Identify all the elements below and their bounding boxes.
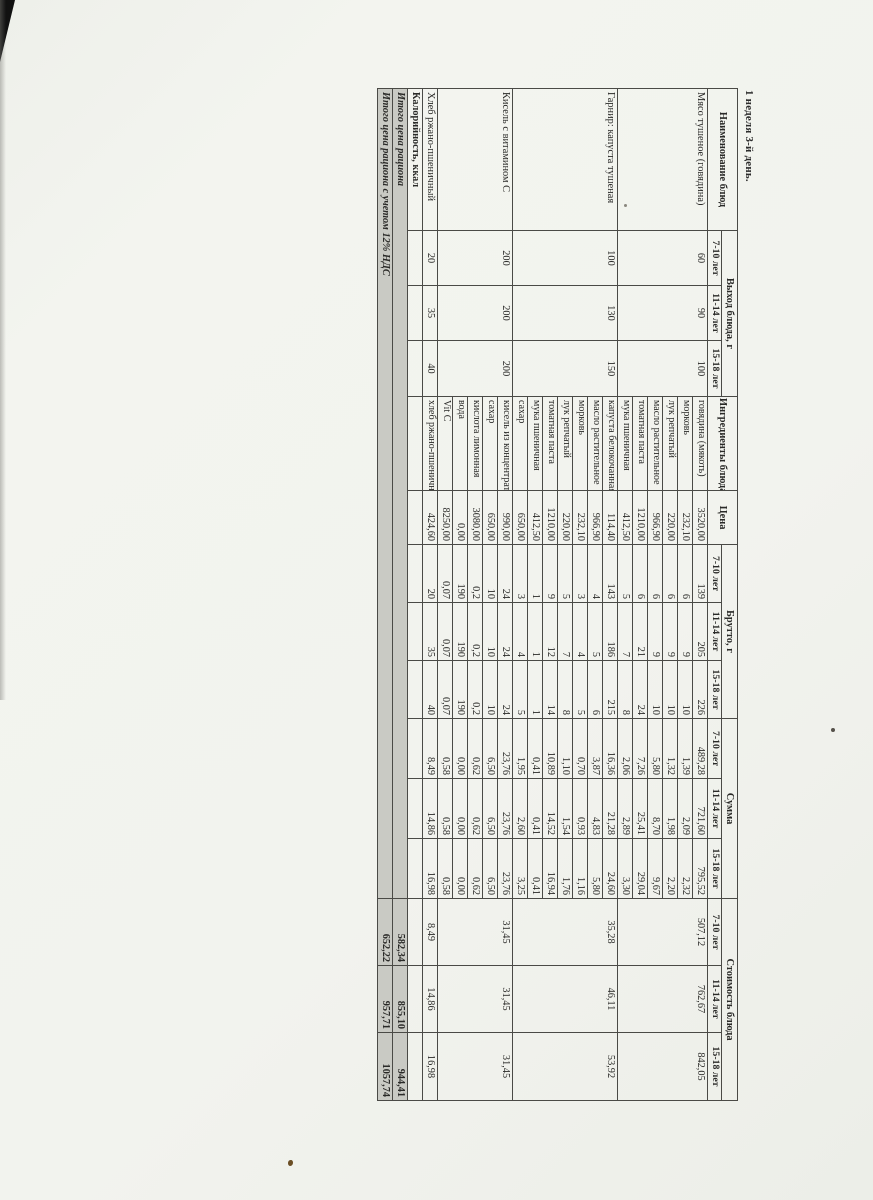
- ingredient-cell: вода: [453, 397, 468, 491]
- col-header-output: Выход блюда, г: [721, 231, 737, 397]
- ingredient-cell: сахар: [483, 397, 498, 491]
- sum-cell: 7,26: [633, 719, 648, 779]
- brutto-cell: 9: [648, 603, 663, 661]
- dish-cost-cell: 842,05: [618, 1033, 708, 1101]
- ingredient-cell: Vit C: [438, 397, 453, 491]
- price-cell: 0,00: [453, 491, 468, 545]
- col-header-age-1: 11-14 лет: [708, 286, 722, 341]
- output-cell: 90: [618, 286, 708, 341]
- brutto-cell: 10: [648, 661, 663, 719]
- price-cell: 3080,00: [468, 491, 483, 545]
- sum-cell: 0,00: [453, 719, 468, 779]
- sum-cell: 3,30: [618, 839, 633, 899]
- brutto-cell: 0,07: [438, 661, 453, 719]
- price-cell: 232,10: [573, 491, 588, 545]
- sum-cell: 2,06: [618, 719, 633, 779]
- price-cell: 412,50: [618, 491, 633, 545]
- brutto-cell: 0,2: [468, 603, 483, 661]
- scan-speck: [831, 728, 835, 732]
- ingredient-cell: сахар: [513, 397, 528, 491]
- sum-cell: 23,76: [498, 839, 513, 899]
- sum-cell: 1,10: [558, 719, 573, 779]
- brutto-cell: 1: [528, 545, 543, 603]
- empty-cell: [408, 603, 423, 661]
- empty-cell: [408, 231, 423, 286]
- price-cell: 966,90: [588, 491, 603, 545]
- col-header-age-0: 7-10 лет: [708, 545, 722, 603]
- ingredient-cell: масло растительное: [588, 397, 603, 491]
- dish-cost-cell: 31,45: [438, 1033, 513, 1101]
- brutto-cell: 1: [528, 661, 543, 719]
- footer-value: [408, 966, 423, 1033]
- sum-cell: 5,80: [648, 719, 663, 779]
- brutto-cell: 186: [603, 603, 618, 661]
- sum-cell: 2,09: [678, 779, 693, 839]
- footer-value: 652,22: [378, 899, 393, 966]
- empty-cell: [408, 341, 423, 397]
- footer-label: Итого цена рациона: [393, 89, 408, 899]
- output-cell: 40: [423, 341, 438, 397]
- ingredient-cell: мука пшеничная: [528, 397, 543, 491]
- price-cell: 1210,00: [543, 491, 558, 545]
- price-cell: 8250,00: [438, 491, 453, 545]
- sum-cell: 14,52: [543, 779, 558, 839]
- price-cell: 424,60: [423, 491, 438, 545]
- brutto-cell: 143: [603, 545, 618, 603]
- output-cell: 130: [513, 286, 618, 341]
- sum-cell: 5,80: [588, 839, 603, 899]
- ingredient-cell: кислота лимонная: [468, 397, 483, 491]
- brutto-cell: 6: [663, 545, 678, 603]
- brutto-cell: 9: [678, 603, 693, 661]
- sum-cell: 0,58: [438, 719, 453, 779]
- sum-cell: 6,50: [483, 719, 498, 779]
- brutto-cell: 3: [573, 545, 588, 603]
- brutto-cell: 7: [558, 603, 573, 661]
- price-cell: 650,00: [483, 491, 498, 545]
- sum-cell: 0,58: [438, 779, 453, 839]
- brutto-cell: 24: [498, 545, 513, 603]
- sum-cell: 489,28: [693, 719, 708, 779]
- output-cell: 200: [438, 341, 513, 397]
- brutto-cell: 3: [513, 545, 528, 603]
- brutto-cell: 5: [573, 661, 588, 719]
- brutto-cell: 6: [678, 545, 693, 603]
- dish-cost-cell: 31,45: [438, 899, 513, 966]
- output-cell: 20: [423, 231, 438, 286]
- brutto-cell: 7: [618, 603, 633, 661]
- sum-cell: 3,87: [588, 719, 603, 779]
- col-header-age-0: 7-10 лет: [708, 719, 722, 779]
- sum-cell: 0,62: [468, 719, 483, 779]
- empty-cell: [408, 779, 423, 839]
- brutto-cell: 24: [633, 661, 648, 719]
- footer-row: Итого цена рациона с учетом 12% НДС652,2…: [378, 89, 393, 1101]
- output-cell: 100: [618, 341, 708, 397]
- sum-cell: 1,39: [678, 719, 693, 779]
- footer-value: 944,41: [393, 1033, 408, 1101]
- table-row: Кисель с витамином С200200200кисель из к…: [498, 89, 513, 1101]
- sum-cell: 1,16: [573, 839, 588, 899]
- brutto-cell: 10: [678, 661, 693, 719]
- dish-cost-cell: 31,45: [438, 966, 513, 1033]
- col-header-age-1: 11-14 лет: [708, 779, 722, 839]
- sum-cell: 8,70: [648, 779, 663, 839]
- sum-cell: 0,00: [453, 779, 468, 839]
- brutto-cell: 10: [483, 603, 498, 661]
- sum-cell: 16,94: [543, 839, 558, 899]
- output-cell: 100: [513, 231, 618, 286]
- sum-cell: 0,41: [528, 719, 543, 779]
- brutto-cell: 24: [498, 603, 513, 661]
- ingredient-cell: говядина (мякоть): [693, 397, 708, 491]
- empty-cell: [408, 491, 423, 545]
- dish-cost-cell: 16,98: [423, 1033, 438, 1101]
- brutto-cell: 205: [693, 603, 708, 661]
- dish-cost-cell: 14,86: [423, 966, 438, 1033]
- footer-value: 582,34: [393, 899, 408, 966]
- footer-label: Итого цена рациона с учетом 12% НДС: [378, 89, 393, 899]
- brutto-cell: 35: [423, 603, 438, 661]
- sum-cell: 2,20: [663, 839, 678, 899]
- price-cell: 220,00: [558, 491, 573, 545]
- table-row: Гарнир: капуста тушеная100130150капуста …: [603, 89, 618, 1101]
- brutto-cell: 5: [513, 661, 528, 719]
- brutto-cell: 10: [483, 661, 498, 719]
- sum-cell: 25,41: [633, 779, 648, 839]
- brutto-cell: 8: [558, 661, 573, 719]
- sum-cell: 0,41: [528, 779, 543, 839]
- brutto-cell: 0,2: [468, 661, 483, 719]
- brutto-cell: 14: [543, 661, 558, 719]
- price-cell: 114,40: [603, 491, 618, 545]
- col-header-age-0: 7-10 лет: [708, 899, 722, 966]
- footer-value: 855,10: [393, 966, 408, 1033]
- col-header-ingredients: Ингредиенты блюда: [708, 397, 738, 491]
- ingredient-cell: хлеб ржано-пшеничный: [423, 397, 438, 491]
- brutto-cell: 5: [558, 545, 573, 603]
- brutto-cell: 226: [693, 661, 708, 719]
- sum-cell: 0,62: [468, 779, 483, 839]
- brutto-cell: 5: [588, 603, 603, 661]
- sum-cell: 3,25: [513, 839, 528, 899]
- sum-cell: 0,93: [573, 779, 588, 839]
- sum-cell: 29,04: [633, 839, 648, 899]
- scan-speck: [288, 1160, 293, 1166]
- sum-cell: 2,60: [513, 779, 528, 839]
- dish-cost-cell: 35,28: [513, 899, 618, 966]
- col-header-price: Цена: [708, 491, 738, 545]
- ingredient-cell: томатная паста: [543, 397, 558, 491]
- footer-value: [408, 899, 423, 966]
- brutto-cell: 5: [618, 545, 633, 603]
- footer-row: Калорийность, ккал: [408, 89, 423, 1101]
- brutto-cell: 21: [633, 603, 648, 661]
- output-cell: 150: [513, 341, 618, 397]
- table-row: Хлеб ржано-пшеничный203540хлеб ржано-пше…: [423, 89, 438, 1101]
- brutto-cell: 9: [543, 545, 558, 603]
- brutto-cell: 8: [618, 661, 633, 719]
- sum-cell: 0,00: [453, 839, 468, 899]
- ingredient-cell: мука пшеничная: [618, 397, 633, 491]
- sum-cell: 9,67: [648, 839, 663, 899]
- brutto-cell: 0,07: [438, 603, 453, 661]
- table-head: Наименование блюдВыход блюда, гИнгредиен…: [708, 89, 738, 1101]
- output-cell: 60: [618, 231, 708, 286]
- brutto-cell: 10: [483, 545, 498, 603]
- dish-cost-cell: 53,92: [513, 1033, 618, 1101]
- footer-value: 1057,74: [378, 1033, 393, 1101]
- empty-cell: [408, 661, 423, 719]
- sum-cell: 23,76: [498, 719, 513, 779]
- ingredient-cell: лук репчатый: [663, 397, 678, 491]
- price-cell: 650,00: [513, 491, 528, 545]
- ingredient-cell: морковь: [573, 397, 588, 491]
- sum-cell: 0,58: [438, 839, 453, 899]
- empty-cell: [408, 286, 423, 341]
- sum-cell: 1,54: [558, 779, 573, 839]
- table-row: Мясо тушеное (говядина)6090100говядина (…: [693, 89, 708, 1101]
- sum-cell: 23,76: [498, 779, 513, 839]
- sum-cell: 6,50: [483, 839, 498, 899]
- brutto-cell: 139: [693, 545, 708, 603]
- sum-cell: 10,89: [543, 719, 558, 779]
- sum-cell: 1,32: [663, 719, 678, 779]
- empty-cell: [408, 397, 423, 491]
- price-cell: 220,00: [663, 491, 678, 545]
- col-header-age-2: 15-18 лет: [708, 661, 722, 719]
- price-cell: 232,10: [678, 491, 693, 545]
- sum-cell: 0,41: [528, 839, 543, 899]
- footer-row: Итого цена рациона582,34855,10944,41: [393, 89, 408, 1101]
- brutto-cell: 190: [453, 603, 468, 661]
- brutto-cell: 4: [588, 545, 603, 603]
- sum-cell: 4,83: [588, 779, 603, 839]
- footer-value: [408, 1033, 423, 1101]
- dish-name-cell: Мясо тушеное (говядина): [618, 89, 708, 231]
- sum-cell: 1,76: [558, 839, 573, 899]
- brutto-cell: 6: [588, 661, 603, 719]
- sum-cell: 1,95: [513, 719, 528, 779]
- ingredient-cell: томатная паста: [633, 397, 648, 491]
- brutto-cell: 9: [663, 603, 678, 661]
- empty-cell: [408, 545, 423, 603]
- output-cell: 200: [438, 231, 513, 286]
- scanned-page: 1 неделя 3-й день. Наименование блюдВыхо…: [0, 0, 873, 1200]
- page-title: 1 неделя 3-й день.: [743, 90, 755, 1102]
- col-header-dish: Наименование блюд: [708, 89, 738, 231]
- sum-cell: 0,62: [468, 839, 483, 899]
- sum-cell: 16,98: [423, 839, 438, 899]
- col-header-age-2: 15-18 лет: [708, 839, 722, 899]
- table-body: Мясо тушеное (говядина)6090100говядина (…: [378, 89, 708, 1101]
- dish-name-cell: Кисель с витамином С: [438, 89, 513, 231]
- rotated-sheet: 1 неделя 3-й день. Наименование блюдВыхо…: [353, 88, 755, 1102]
- dish-name-cell: Гарнир: капуста тушеная: [513, 89, 618, 231]
- col-header-brutto: Брутто, г: [721, 545, 737, 719]
- brutto-cell: 0,07: [438, 545, 453, 603]
- sum-cell: 8,49: [423, 719, 438, 779]
- brutto-cell: 190: [453, 661, 468, 719]
- col-header-age-0: 7-10 лет: [708, 231, 722, 286]
- brutto-cell: 6: [633, 545, 648, 603]
- ingredient-cell: масло растительное: [648, 397, 663, 491]
- brutto-cell: 4: [513, 603, 528, 661]
- brutto-cell: 1: [528, 603, 543, 661]
- ingredient-cell: капуста белокочанная: [603, 397, 618, 491]
- brutto-cell: 190: [453, 545, 468, 603]
- sum-cell: 2,32: [678, 839, 693, 899]
- col-header-age-1: 11-14 лет: [708, 603, 722, 661]
- output-cell: 35: [423, 286, 438, 341]
- brutto-cell: 10: [663, 661, 678, 719]
- sum-cell: 0,70: [573, 719, 588, 779]
- brutto-cell: 6: [648, 545, 663, 603]
- col-header-cost: Стоимость блюда: [721, 899, 737, 1101]
- brutto-cell: 0,2: [468, 545, 483, 603]
- sum-cell: 721,60: [693, 779, 708, 839]
- sum-cell: 24,60: [603, 839, 618, 899]
- ration-table: Наименование блюдВыход блюда, гИнгредиен…: [377, 88, 738, 1101]
- brutto-cell: 24: [498, 661, 513, 719]
- dish-cost-cell: 507,12: [618, 899, 708, 966]
- scan-edge-shadow: [0, 0, 6, 700]
- empty-cell: [408, 719, 423, 779]
- price-cell: 990,00: [498, 491, 513, 545]
- dish-cost-cell: 8,49: [423, 899, 438, 966]
- brutto-cell: 4: [573, 603, 588, 661]
- price-cell: 3520,00: [693, 491, 708, 545]
- sum-cell: 16,36: [603, 719, 618, 779]
- col-header-age-2: 15-18 лет: [708, 341, 722, 397]
- sum-cell: 21,28: [603, 779, 618, 839]
- ingredient-cell: морковь: [678, 397, 693, 491]
- price-cell: 1210,00: [633, 491, 648, 545]
- sum-cell: 6,50: [483, 779, 498, 839]
- brutto-cell: 20: [423, 545, 438, 603]
- sum-cell: 14,86: [423, 779, 438, 839]
- ingredient-cell: лук репчатый: [558, 397, 573, 491]
- brutto-cell: 40: [423, 661, 438, 719]
- sum-cell: 2,89: [618, 779, 633, 839]
- dish-cost-cell: 46,11: [513, 966, 618, 1033]
- empty-cell: [408, 839, 423, 899]
- sum-cell: 795,52: [693, 839, 708, 899]
- price-cell: 966,90: [648, 491, 663, 545]
- output-cell: 200: [438, 286, 513, 341]
- price-cell: 412,50: [528, 491, 543, 545]
- dish-cost-cell: 762,67: [618, 966, 708, 1033]
- dish-name-cell: Хлеб ржано-пшеничный: [423, 89, 438, 231]
- sum-cell: 1,98: [663, 779, 678, 839]
- footer-value: 957,71: [378, 966, 393, 1033]
- brutto-cell: 12: [543, 603, 558, 661]
- ingredient-cell: кисель из концентрата: [498, 397, 513, 491]
- col-header-age-2: 15-18 лет: [708, 1033, 722, 1101]
- col-header-age-1: 11-14 лет: [708, 966, 722, 1033]
- footer-label: Калорийность, ккал: [408, 89, 423, 231]
- brutto-cell: 215: [603, 661, 618, 719]
- col-header-sum: Сумма: [721, 719, 737, 899]
